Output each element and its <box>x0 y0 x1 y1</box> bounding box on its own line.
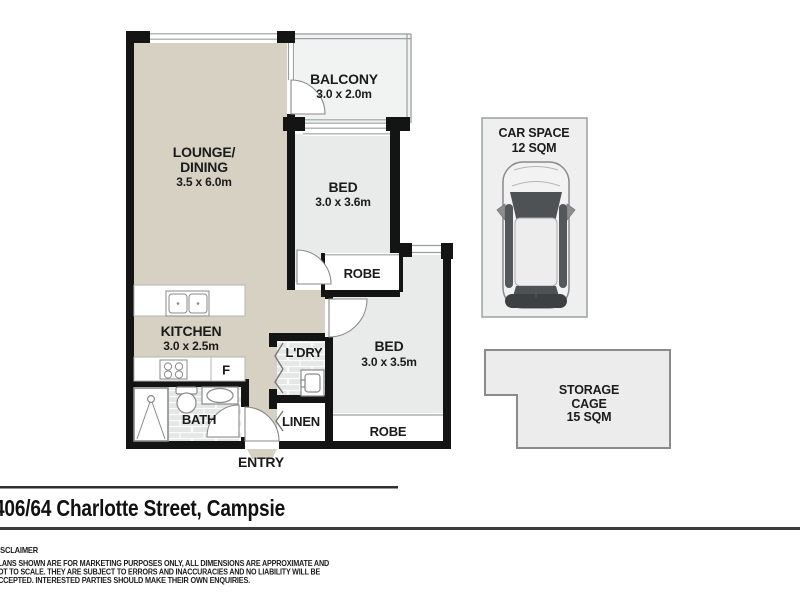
floorplan-page: F LOUNGE/ DINING 3.5 x 6.0m BALCONY 3.0 … <box>0 0 800 600</box>
storage-cage: STORAGE CAGE 15 SQM <box>485 350 670 448</box>
storage-line3: 15 SQM <box>567 410 612 424</box>
lounge-label-line1: LOUNGE/ <box>173 144 236 160</box>
bed1-label: BED <box>329 179 358 195</box>
shower-icon <box>134 388 168 441</box>
address-divider <box>0 486 398 489</box>
footer: 406/64 Charlotte Street, Campsie DISCLAI… <box>0 486 800 585</box>
entry-label: ENTRY <box>238 454 285 470</box>
address-title: 406/64 Charlotte Street, Campsie <box>0 495 285 521</box>
lounge-label-line2: DINING <box>180 159 228 175</box>
storage-line1: STORAGE <box>559 383 619 397</box>
kitchen-label: KITCHEN <box>161 323 222 339</box>
kitchen-counter: F <box>134 357 245 381</box>
disclaimer-heading: DISCLAIMER <box>0 545 38 555</box>
laundry-label: L'DRY <box>286 345 324 360</box>
cooktop-icon <box>160 360 187 379</box>
balcony-dims: 3.0 x 2.0m <box>316 87 371 101</box>
bed2-dims: 3.0 x 3.5m <box>361 355 416 369</box>
sink-icon <box>166 291 209 316</box>
kitchen-dims: 3.0 x 2.5m <box>163 339 218 353</box>
car-space-area: 12 SQM <box>512 141 557 155</box>
footer-divider <box>0 527 800 530</box>
bed1-dims: 3.0 x 3.6m <box>315 195 370 209</box>
floorplan-canvas: F LOUNGE/ DINING 3.5 x 6.0m BALCONY 3.0 … <box>0 0 800 600</box>
disclaimer-line-3: ACCEPTED. INTERESTED PARTIES SHOULD MAKE… <box>0 576 250 585</box>
car-icon <box>497 162 575 308</box>
toilet-icon <box>176 387 197 413</box>
fridge-label: F <box>222 363 230 378</box>
laundry-tub-icon <box>301 370 324 396</box>
car-space-title: CAR SPACE <box>499 126 570 140</box>
linen-label: LINEN <box>282 414 320 429</box>
robe-bed1-label: ROBE <box>344 266 381 281</box>
basin-icon <box>202 387 238 404</box>
balcony-label: BALCONY <box>310 71 379 87</box>
car-space: CAR SPACE 12 SQM <box>482 118 587 317</box>
robe-bed2-label: ROBE <box>370 424 407 439</box>
lounge-dims: 3.5 x 6.0m <box>176 175 231 189</box>
storage-line2: CAGE <box>571 397 606 411</box>
bed2-label: BED <box>375 338 404 354</box>
bath-label: BATH <box>182 412 216 427</box>
kitchen-island <box>134 285 245 316</box>
